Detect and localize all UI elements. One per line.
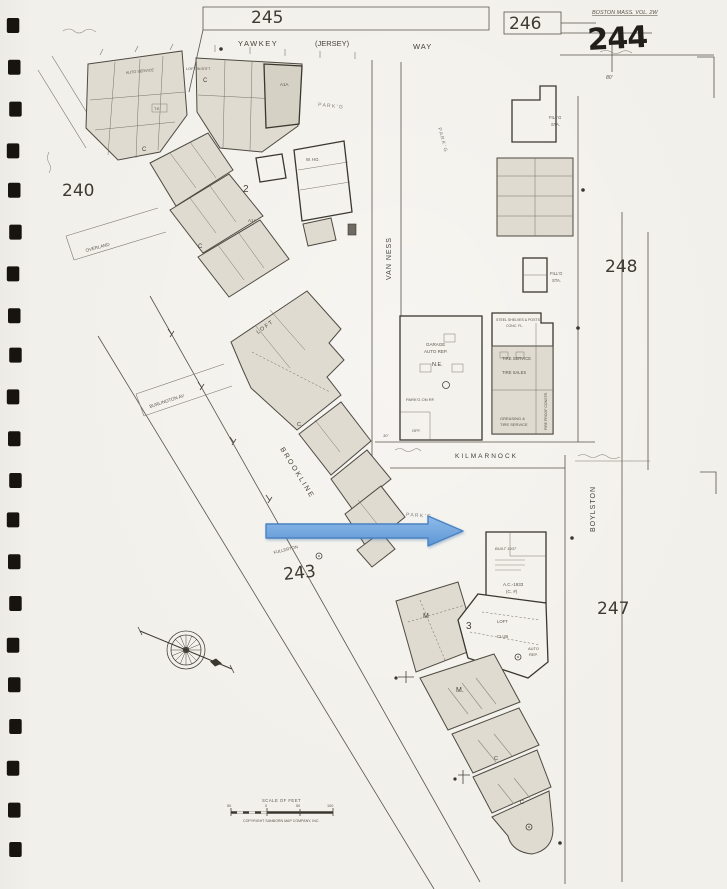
label-m-1: M — [423, 613, 429, 620]
binding-hole — [7, 638, 19, 653]
scale-title: SCALE OF FEET — [262, 798, 301, 803]
label-a1a-1: A1A — [280, 82, 289, 87]
binding-hole — [9, 719, 22, 734]
label-built-1937: BUILT 1937 — [495, 546, 517, 551]
sheet-number-244: 244 — [587, 20, 648, 58]
scale-tick-100: 100 — [327, 804, 333, 808]
label-dim-80: 80' — [606, 75, 614, 81]
label-a1a-2: A1A — [248, 218, 257, 223]
binding-hole — [8, 554, 21, 569]
label-c-1: C — [203, 78, 208, 84]
label-m-2: M. — [456, 687, 464, 694]
street-label-way: WAY — [413, 42, 432, 51]
label-c-3: C — [198, 244, 203, 250]
label-c-4: C. — [297, 422, 303, 428]
binding-hole — [9, 473, 22, 488]
scale-copyright: COPYRIGHT SANBORN MAP COMPANY, INC. — [243, 819, 319, 823]
binding-hole — [8, 60, 21, 75]
volume-note: BOSTON MASS. VOL. 2W — [592, 10, 658, 16]
building-block-east — [400, 86, 573, 440]
label-club: CLUB — [497, 634, 508, 639]
label-parkg-on-roof: PARK'G ON RF. — [406, 397, 435, 402]
sheet-number-245: 245 — [251, 8, 283, 28]
compass-rose-icon — [138, 627, 234, 673]
street-label-brookline: BROOKLINE — [278, 446, 315, 500]
binding-hole — [8, 183, 21, 198]
label-greasing: GREASING & — [500, 416, 525, 421]
label-rep: REP. — [529, 652, 538, 657]
label-garage-autorep: AUTO REP. — [424, 349, 448, 354]
label-steel-shelves: STEEL SHELVES & POSTS — [496, 318, 541, 322]
sheet-number-243: 243 — [282, 562, 316, 585]
binding-hole — [7, 512, 19, 527]
binding-hole — [7, 266, 19, 281]
label-c-2: C — [142, 147, 147, 153]
label-ne: N.E. — [432, 362, 443, 368]
binding-hole — [9, 225, 22, 240]
street-label-overland: OVERLAND — [85, 242, 111, 253]
label-c-5: C — [494, 756, 498, 762]
street-label-jersey: (JERSEY) — [315, 39, 350, 48]
binding-hole — [8, 308, 21, 323]
label-garage: GARAGE — [426, 342, 445, 347]
binding-hole — [8, 677, 21, 692]
block-number-2: 2 — [243, 184, 249, 195]
label-dim-30: 30' — [383, 433, 388, 438]
label-fillg-2b: STA. — [552, 278, 561, 283]
label-fireproof: FIRE PROOF CONSTR. — [544, 392, 548, 430]
label-fillg-1: FILL'G — [549, 115, 561, 120]
scale-tick-50-left: 50 — [227, 804, 231, 808]
binding-hole — [9, 348, 22, 363]
scale-bar: SCALE OF FEET 50 0 50 100 COPYRIGHT SANB… — [227, 798, 333, 823]
building-chain-brookline — [150, 133, 405, 567]
binding-hole — [7, 761, 19, 776]
street-label-boylston: BOYLSTON — [590, 486, 597, 532]
binding-hole — [9, 102, 22, 117]
binding-hole — [8, 431, 21, 446]
label-greasing-2: TIRE SERVICE — [500, 422, 528, 427]
binding-hole — [8, 803, 21, 818]
scale-tick-50-right: 50 — [296, 804, 300, 808]
label-te: T.E. — [154, 107, 161, 111]
label-tire-service: TIRE SERVICE — [502, 356, 531, 361]
sheet-number-246: 246 — [509, 14, 541, 34]
sheet-number-248: 248 — [605, 257, 637, 277]
label-conc-fl: CONC. FL. — [506, 324, 523, 328]
label-parking-1: P A R K ' G — [318, 102, 343, 111]
sheet-number-240: 240 — [62, 181, 94, 201]
label-loft-small: LOFT — [497, 619, 508, 624]
block-number-3: 3 — [466, 621, 472, 632]
map-canvas: 245 246 244 BOSTON MASS. VOL. 2W 240 243… — [0, 0, 727, 889]
label-fillg-1b: STA. — [551, 122, 560, 127]
binding-hole — [7, 18, 19, 33]
sheet-number-247: 247 — [597, 599, 629, 619]
binding-holes — [7, 18, 22, 857]
label-ac-1933: A.C.-1933 — [503, 582, 524, 587]
scanned-map-page: 245 246 244 BOSTON MASS. VOL. 2W 240 243… — [0, 0, 727, 889]
label-office: OFF. — [412, 428, 421, 433]
label-warehouse: W. HO. — [306, 157, 320, 162]
street-label-burlington: BURLINGTON AV — [149, 393, 185, 409]
binding-hole — [9, 596, 22, 611]
label-fillg-2: FILL'G — [550, 271, 562, 276]
label-c-6: C — [520, 800, 524, 806]
scale-tick-0: 0 — [265, 804, 267, 808]
label-ac-1933b: (C. #) — [506, 589, 518, 594]
street-label-yawkey: YAWKEY — [238, 39, 278, 48]
street-label-van-ness: VAN NESS — [386, 237, 393, 280]
building-block-south — [396, 532, 553, 854]
binding-hole — [7, 389, 19, 404]
binding-hole — [9, 842, 22, 857]
street-label-kilmarnock: KILMARNOCK — [455, 453, 518, 460]
label-auto: AUTO — [528, 646, 539, 651]
label-loft-basement: LOFT IN B'S'T — [186, 67, 211, 71]
label-tire-sales: TIRE SALES — [502, 370, 526, 375]
label-parking-2: P A R K ' G — [436, 127, 448, 153]
binding-hole — [7, 143, 19, 158]
